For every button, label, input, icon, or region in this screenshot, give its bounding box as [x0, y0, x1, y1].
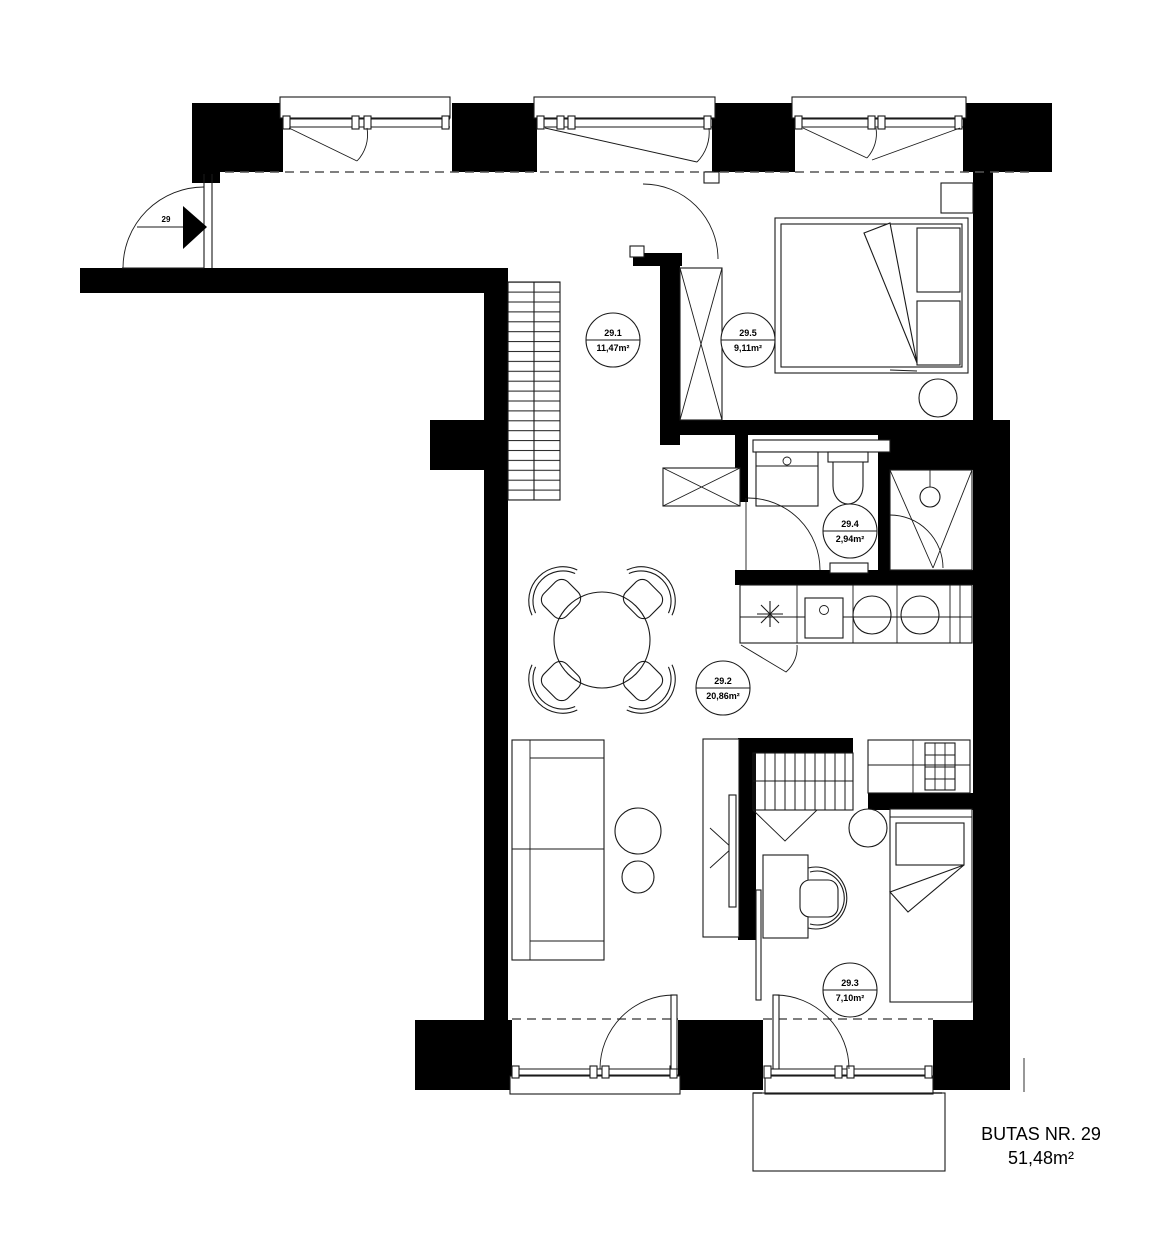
- nightstand: [941, 183, 973, 213]
- apartment-title: BUTAS NR. 29: [981, 1124, 1101, 1144]
- room-id: 29.1: [604, 328, 622, 338]
- hall-closet: [663, 468, 740, 506]
- room-area: 11,47m²: [596, 343, 629, 353]
- coffee-table-large: [615, 808, 661, 854]
- dining-set: [516, 554, 688, 726]
- balcony: [753, 1093, 945, 1171]
- room-area: 20,86m²: [706, 691, 740, 701]
- kitchen-counter: [740, 585, 972, 672]
- room-label-29-2: 29.2 20,86m²: [696, 661, 750, 715]
- coffee-table-small: [622, 861, 654, 893]
- laundry-unit: [868, 740, 970, 793]
- pillow: [896, 823, 964, 865]
- title-block: BUTAS NR. 29 51,48m²: [981, 1124, 1101, 1168]
- room-id: 29.2: [714, 676, 732, 686]
- bedroom-door: [630, 172, 719, 259]
- room-area: 2,94m²: [836, 534, 865, 544]
- window-top-3: [792, 97, 966, 160]
- cabinet-door-swing: [741, 645, 797, 672]
- bathroom-door-swing: [748, 498, 820, 570]
- room-id: 29.5: [739, 328, 757, 338]
- bedroom-stool: [919, 379, 957, 417]
- balcony-door-leaf: [671, 995, 677, 1069]
- room-id: 29.3: [841, 978, 859, 988]
- bedroom-wardrobe: [680, 268, 722, 420]
- tv-unit: [703, 739, 739, 937]
- wardrobe-hangers: [753, 753, 853, 841]
- entrance-door: 29: [122, 174, 212, 268]
- toilet: [828, 452, 868, 504]
- entrance-number: 29: [162, 215, 171, 224]
- dining-table: [554, 592, 650, 688]
- room-label-29-4: 29.4 2,94m²: [823, 504, 877, 558]
- sink: [756, 452, 818, 506]
- apartment-area: 51,48m²: [1008, 1148, 1074, 1168]
- window-bottom-left: [510, 995, 680, 1094]
- room-label-29-5: 29.5 9,11m²: [721, 313, 775, 367]
- room-id: 29.4: [841, 519, 859, 529]
- sliding-door-leaf: [756, 890, 761, 1000]
- tv-screen: [729, 795, 736, 907]
- balcony-door-leaf: [773, 995, 779, 1069]
- room-label-29-3: 29.3 7,10m²: [823, 963, 877, 1017]
- single-bed: [890, 809, 972, 1002]
- room-area: 9,11m²: [734, 343, 762, 353]
- hall-radiator: [508, 282, 560, 500]
- window-top-2: [534, 97, 715, 162]
- shower: [890, 470, 972, 570]
- vanity-counter: [753, 440, 890, 452]
- room-area: 7,10m²: [836, 993, 865, 1003]
- floor-plan-sheet: 29: [0, 0, 1152, 1254]
- double-bed: [775, 218, 968, 373]
- stool: [849, 809, 887, 847]
- room-label-29-1: 29.1 11,47m²: [586, 313, 640, 367]
- sofa: [512, 740, 604, 960]
- floor-plan-drawing: 29: [0, 0, 1152, 1254]
- window-top-1: [280, 97, 450, 161]
- balcony-door-swing: [600, 995, 674, 1069]
- kitchen-sink: [805, 598, 843, 638]
- door-threshold: [830, 563, 868, 573]
